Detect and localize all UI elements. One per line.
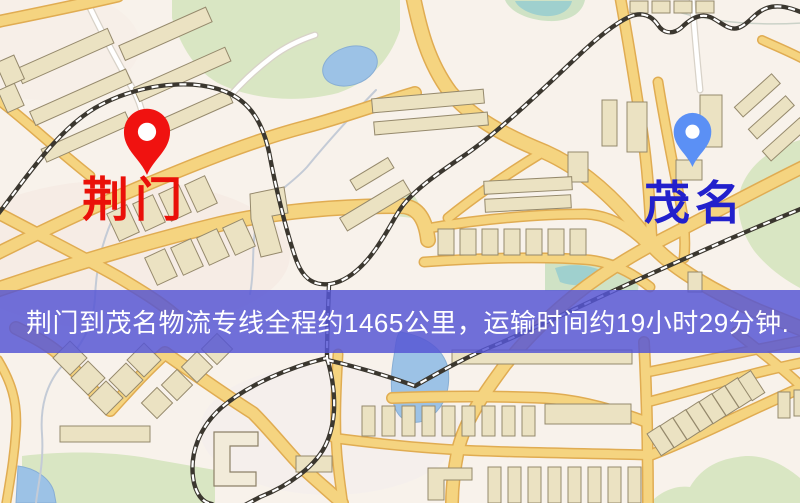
origin-marker-pin[interactable] bbox=[118, 103, 176, 176]
origin-pin-hole bbox=[138, 123, 156, 141]
destination-pin-shape bbox=[674, 113, 712, 167]
origin-city-label: 荆门 bbox=[82, 176, 188, 223]
destination-city-label: 茂名 bbox=[644, 180, 746, 226]
destination-pin-hole bbox=[685, 125, 699, 139]
origin-pin-shape bbox=[124, 109, 170, 175]
map-background bbox=[0, 0, 800, 503]
map-screenshot: 荆门 茂名 荆门到茂名物流专线全程约1465公里，运输时间约19小时29分钟. bbox=[0, 0, 800, 503]
route-info-banner: 荆门到茂名物流专线全程约1465公里，运输时间约19小时29分钟. bbox=[0, 290, 800, 353]
destination-marker-pin[interactable] bbox=[669, 108, 716, 168]
route-info-text: 荆门到茂名物流专线全程约1465公里，运输时间约19小时29分钟. bbox=[26, 303, 789, 340]
